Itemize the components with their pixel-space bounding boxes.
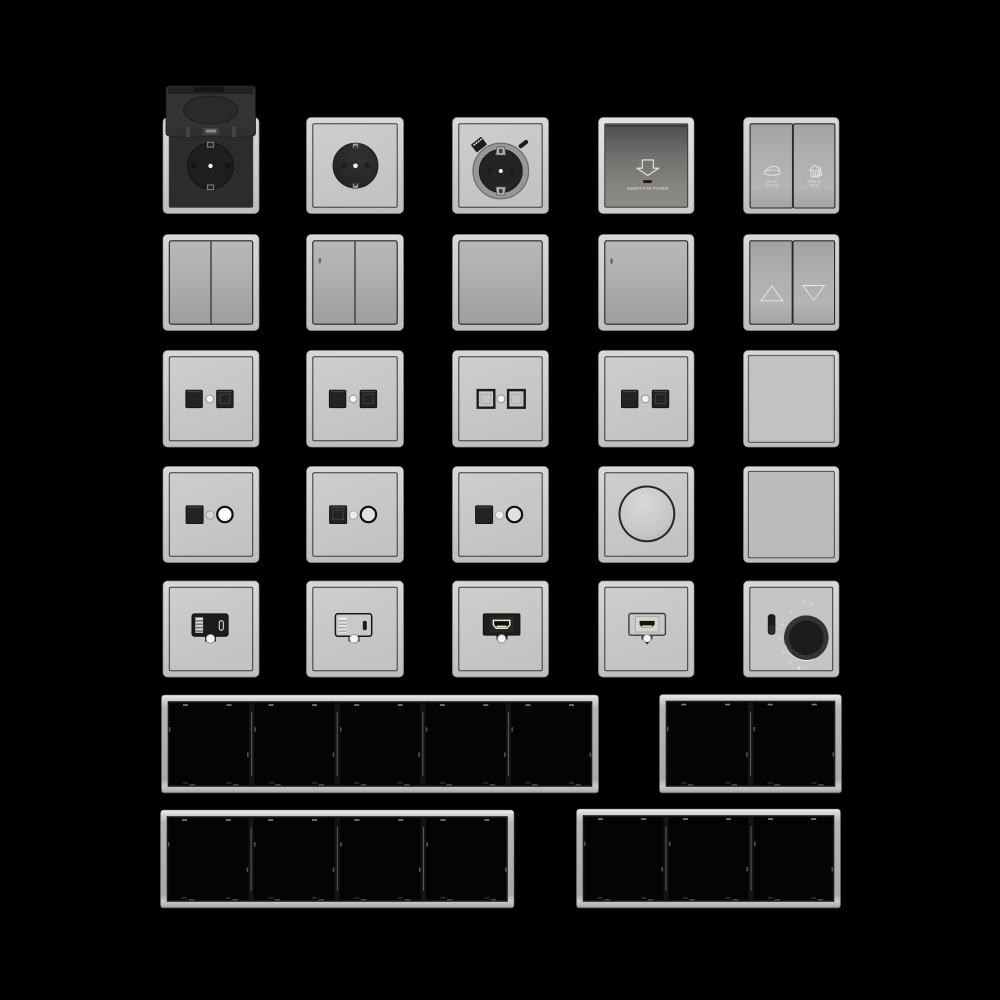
svg-text:ROOM: ROOM bbox=[810, 183, 820, 187]
svg-text:DISTURB: DISTURB bbox=[765, 183, 779, 187]
svg-text:INSERT FOR POWER: INSERT FOR POWER bbox=[627, 186, 669, 191]
svg-text:❉: ❉ bbox=[797, 666, 801, 671]
